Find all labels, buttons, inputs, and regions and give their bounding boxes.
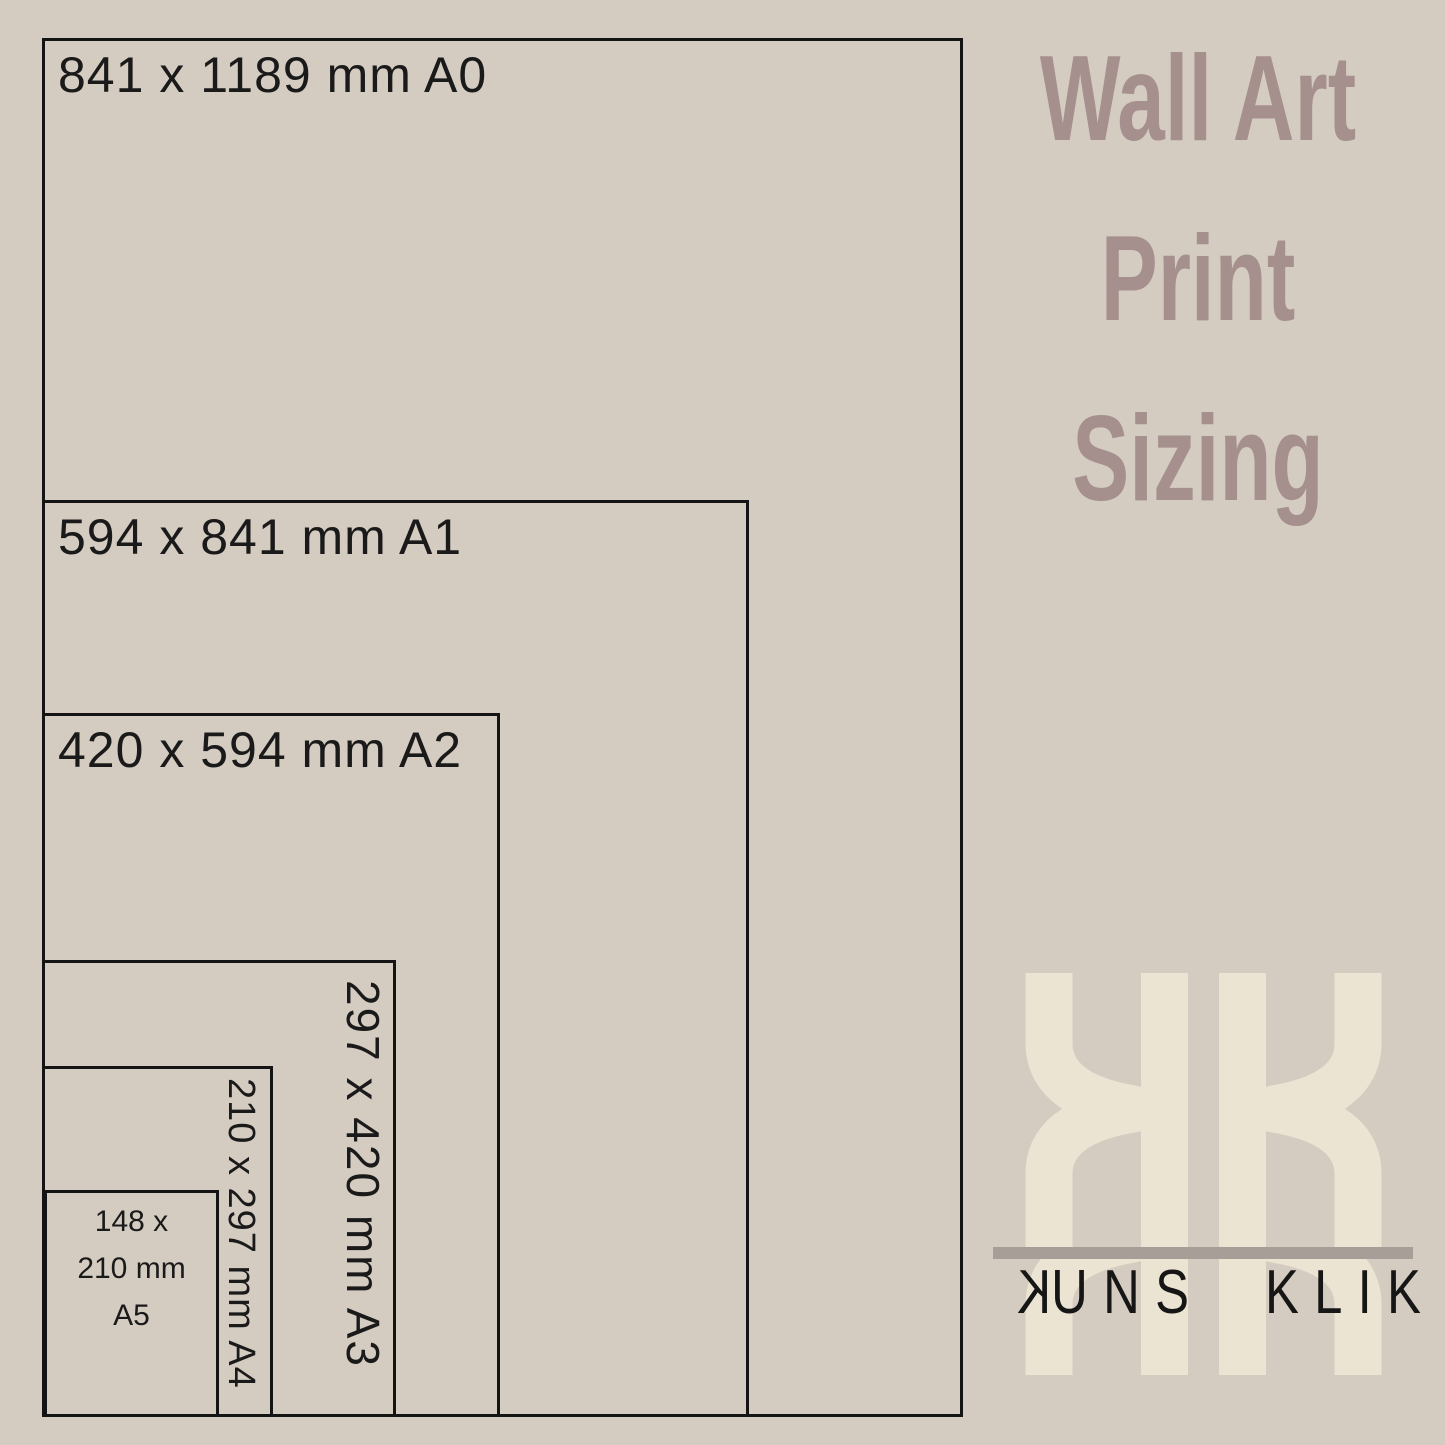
size-label-a4: 210 x 297 mm A4 [219, 1078, 262, 1389]
brand-word-klik: KLIK [1265, 1262, 1436, 1324]
size-label-a2: 420 x 594 mm A2 [58, 721, 462, 779]
mirrored-k-letter: K [1002, 1262, 1051, 1324]
size-label-a1: 594 x 841 mm A1 [58, 508, 462, 566]
page-title: Wall Art Print Sizing [1037, 8, 1359, 548]
title-line-3: Sizing [1037, 368, 1359, 548]
size-label-a5-line3: A5 [44, 1292, 219, 1339]
size-label-a0: 841 x 1189 mm A0 [58, 46, 487, 104]
brand-word-kuns: KUNS [1002, 1262, 1204, 1324]
title-line-1: Wall Art [1037, 8, 1359, 188]
size-label-a3: 297 x 420 mm A3 [336, 980, 390, 1368]
brand-name: KUNS KLIK [1002, 1262, 1414, 1324]
poster-canvas: 841 x 1189 mm A0 594 x 841 mm A1 420 x 5… [0, 0, 1445, 1445]
size-label-a5-line1: 148 x [44, 1198, 219, 1245]
title-line-2: Print [1037, 188, 1359, 368]
size-label-a5-line2: 210 mm [44, 1245, 219, 1292]
brand-word-kuns-rest: UNS [1051, 1262, 1204, 1324]
kk-monogram-icon [1025, 973, 1382, 1247]
size-label-a5: 148 x 210 mm A5 [44, 1198, 219, 1339]
